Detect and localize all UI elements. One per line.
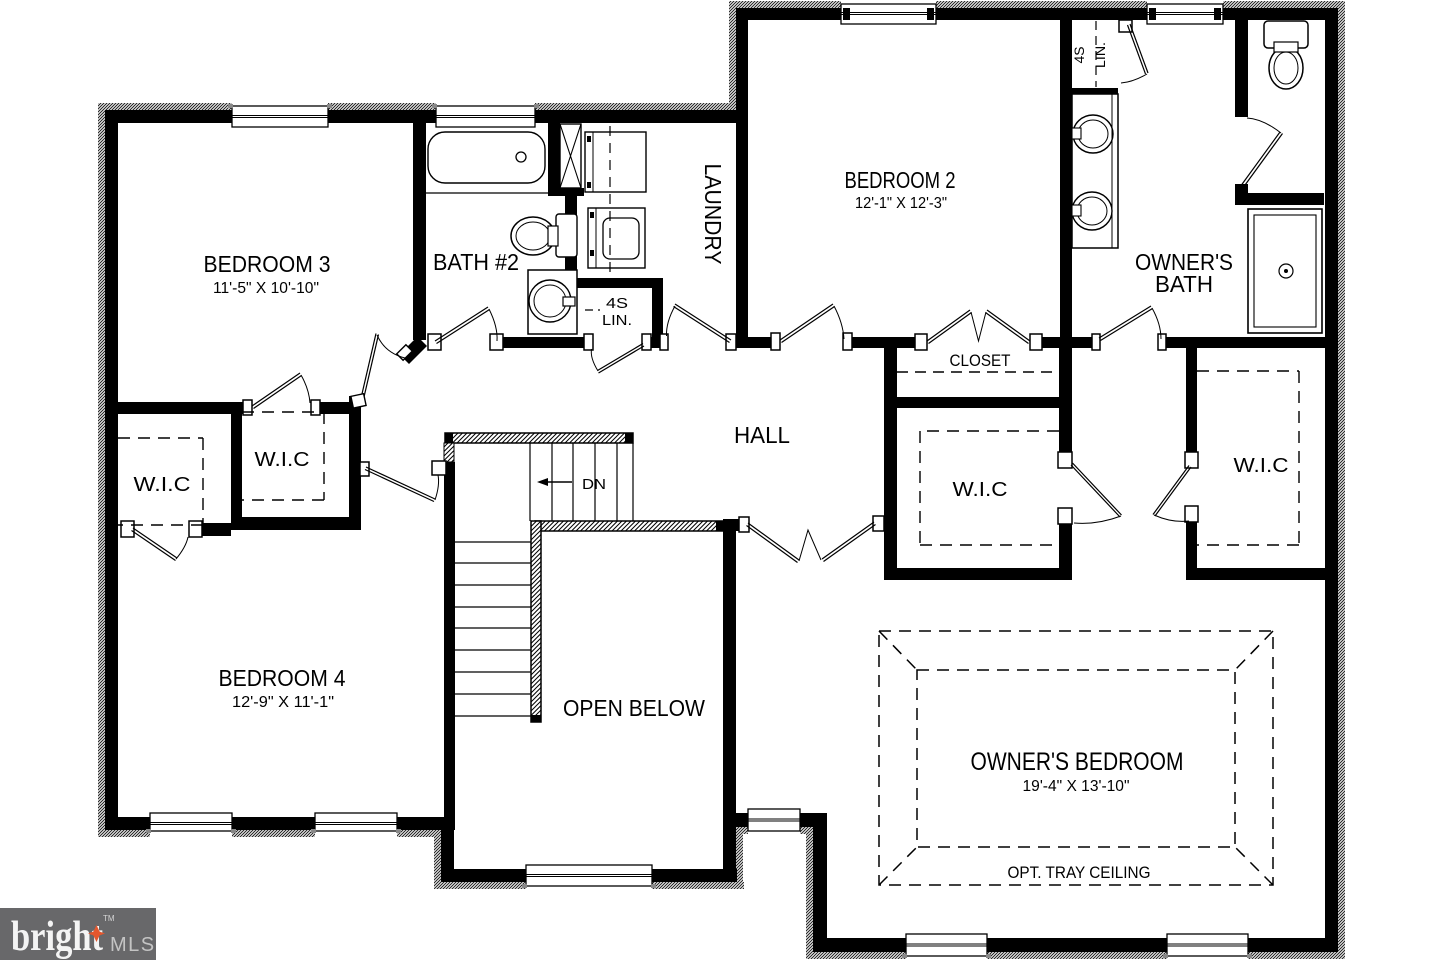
svg-text:12'-1" X 12'-3": 12'-1" X 12'-3" xyxy=(855,195,947,212)
svg-text:W.I.C: W.I.C xyxy=(134,474,191,496)
svg-text:4S: 4S xyxy=(606,295,628,312)
svg-text:LIN.: LIN. xyxy=(1092,42,1108,68)
svg-text:OPEN BELOW: OPEN BELOW xyxy=(563,695,705,721)
svg-text:BATH: BATH xyxy=(1155,271,1213,297)
svg-text:bright: bright xyxy=(11,914,103,960)
svg-text:W.I.C: W.I.C xyxy=(255,449,310,471)
svg-text:OWNER'S BEDROOM: OWNER'S BEDROOM xyxy=(971,748,1184,776)
svg-text:OPT. TRAY CEILING: OPT. TRAY CEILING xyxy=(1008,863,1151,882)
svg-text:TM: TM xyxy=(103,914,115,923)
svg-text:12'-9" X 11'-1": 12'-9" X 11'-1" xyxy=(232,694,334,711)
svg-text:BEDROOM 4: BEDROOM 4 xyxy=(219,665,346,691)
svg-text:LAUNDRY: LAUNDRY xyxy=(700,164,726,265)
svg-text:BEDROOM 3: BEDROOM 3 xyxy=(204,251,331,277)
svg-text:BATH #2: BATH #2 xyxy=(433,249,519,275)
svg-text:19'-4" X 13'-10": 19'-4" X 13'-10" xyxy=(1023,778,1130,795)
svg-text:HALL: HALL xyxy=(734,422,790,448)
svg-text:MLS: MLS xyxy=(110,934,156,956)
svg-text:LIN.: LIN. xyxy=(602,312,632,329)
svg-text:DN: DN xyxy=(582,476,606,493)
svg-text:W.I.C: W.I.C xyxy=(953,479,1008,501)
svg-text:W.I.C: W.I.C xyxy=(1234,455,1289,477)
svg-text:BEDROOM 2: BEDROOM 2 xyxy=(845,167,956,193)
svg-text:11'-5" X 10'-10": 11'-5" X 10'-10" xyxy=(213,280,319,297)
svg-text:CLOSET: CLOSET xyxy=(950,351,1011,370)
svg-text:4S: 4S xyxy=(1071,47,1087,64)
